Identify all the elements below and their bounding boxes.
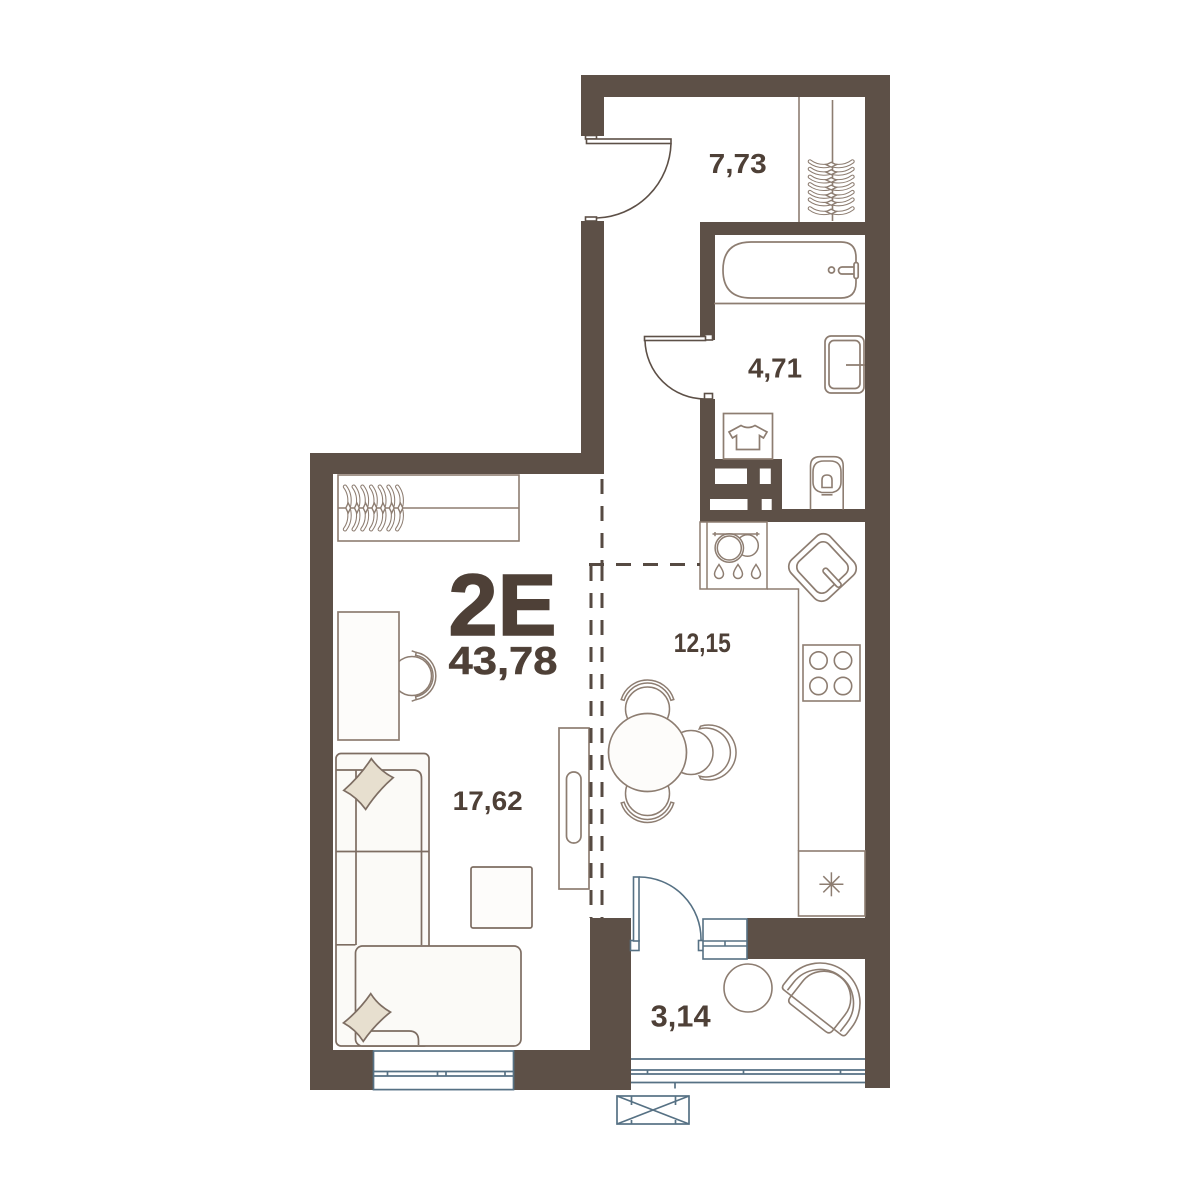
svg-text:43,78: 43,78 — [449, 640, 558, 683]
svg-text:4,71: 4,71 — [748, 353, 802, 384]
svg-text:3,14: 3,14 — [651, 999, 712, 1034]
svg-text:12,15: 12,15 — [674, 628, 731, 658]
svg-text:7,73: 7,73 — [709, 148, 767, 179]
svg-text:17,62: 17,62 — [453, 786, 523, 816]
